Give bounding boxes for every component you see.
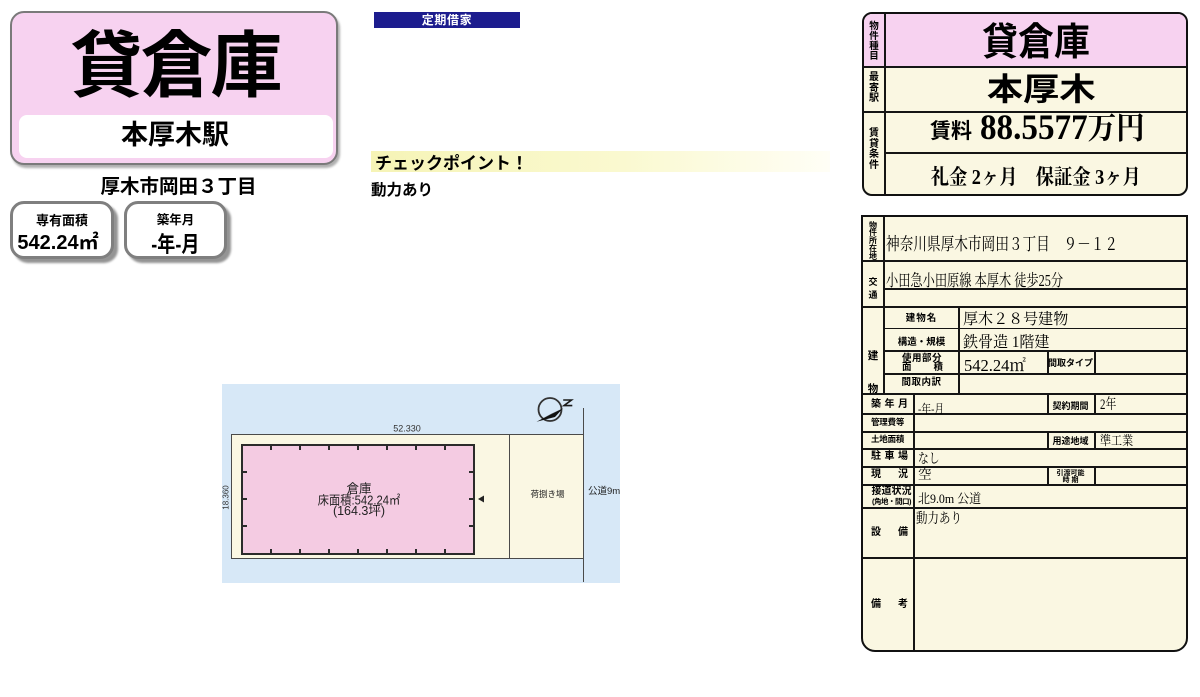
svg-text:18.360: 18.360 (222, 485, 231, 510)
svg-text:荷捌き場: 荷捌き場 (530, 489, 565, 499)
svg-text:公道9m: 公道9m (588, 485, 620, 497)
svg-text:52.330: 52.330 (393, 424, 421, 434)
svg-text:(164.3坪): (164.3坪) (333, 504, 385, 518)
